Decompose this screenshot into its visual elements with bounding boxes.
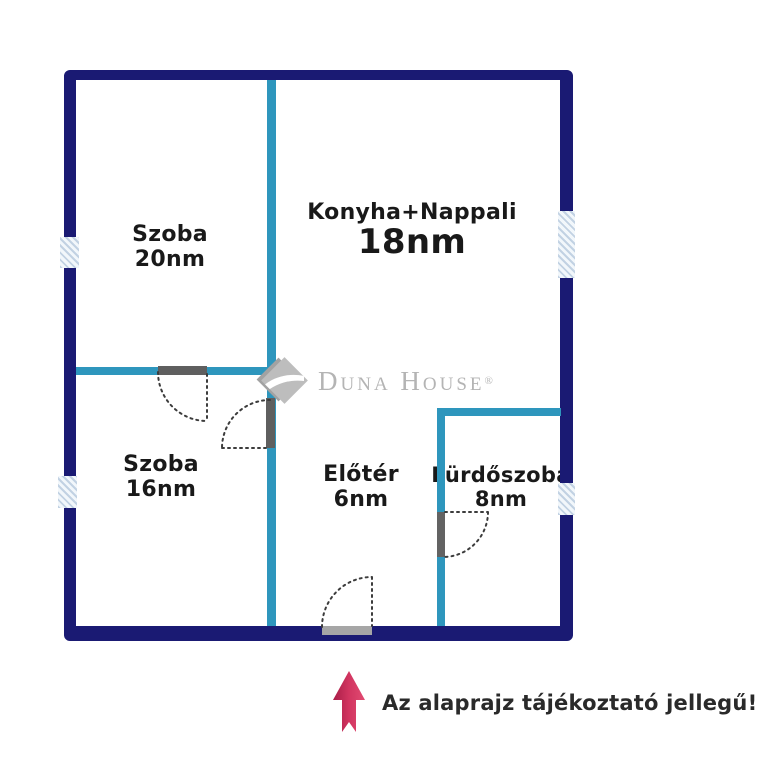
interior-wall-vertical-main bbox=[267, 80, 276, 626]
watermark-brand-text: Duna House bbox=[318, 354, 485, 408]
duna-house-watermark: Duna House ® bbox=[256, 354, 493, 408]
window-szoba20-left bbox=[60, 237, 79, 268]
disclaimer-text: Az alaprajz tájékoztató jellegű! bbox=[382, 691, 757, 715]
bathroom-wall-left bbox=[437, 416, 445, 626]
window-szoba16-left bbox=[58, 476, 77, 508]
window-furdoszoba-right bbox=[558, 483, 575, 515]
interior-wall-between-szoba-rooms bbox=[76, 367, 276, 375]
registered-trademark-symbol: ® bbox=[485, 375, 493, 387]
window-konyha-right bbox=[558, 211, 575, 278]
bathroom-wall-top bbox=[437, 408, 561, 416]
floorplan-screenshot: Szoba 20nm Konyha+Nappali 18nm Szoba 16n… bbox=[0, 0, 757, 768]
up-arrow-icon bbox=[332, 670, 366, 734]
duna-house-diamond-icon bbox=[256, 354, 310, 408]
